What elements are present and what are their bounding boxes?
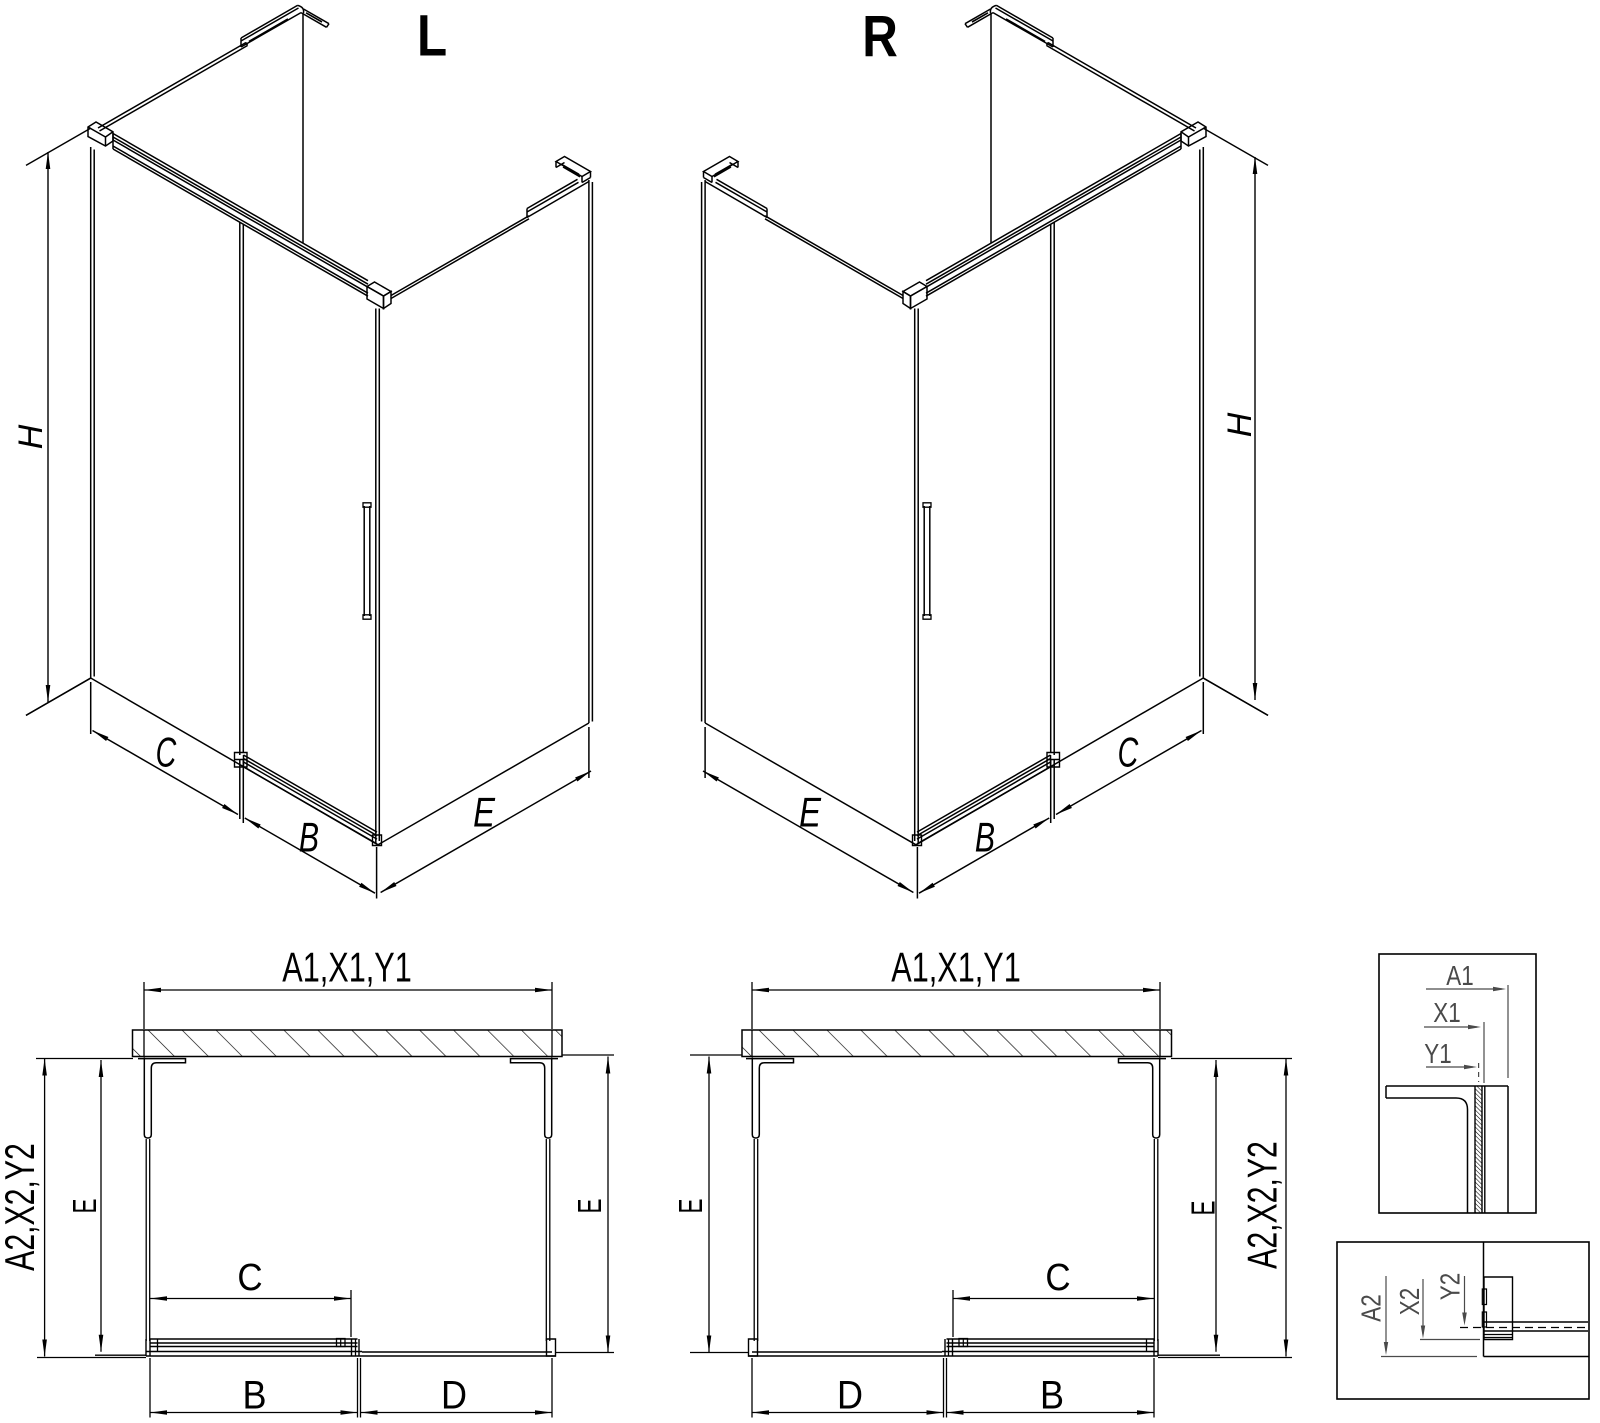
svg-text:C: C <box>237 1256 262 1299</box>
svg-text:A1,X1,Y1: A1,X1,Y1 <box>282 944 411 991</box>
svg-text:Y2: Y2 <box>1435 1273 1466 1300</box>
svg-text:D: D <box>441 1374 467 1418</box>
svg-text:C: C <box>1045 1256 1070 1299</box>
svg-text:B: B <box>299 813 319 860</box>
svg-text:E: E <box>66 1199 103 1214</box>
svg-text:D: D <box>837 1374 863 1418</box>
svg-text:X1: X1 <box>1433 998 1460 1029</box>
svg-text:B: B <box>1040 1374 1064 1418</box>
svg-text:A1,X1,Y1: A1,X1,Y1 <box>891 944 1020 991</box>
svg-text:A2,X2,Y2: A2,X2,Y2 <box>0 1143 43 1271</box>
svg-text:E: E <box>473 789 496 836</box>
svg-text:R: R <box>862 5 898 70</box>
svg-text:H: H <box>1221 412 1259 437</box>
svg-text:B: B <box>242 1374 266 1418</box>
svg-text:C: C <box>1118 728 1139 776</box>
svg-text:H: H <box>12 424 50 449</box>
svg-text:Y1: Y1 <box>1424 1039 1451 1070</box>
svg-text:A1: A1 <box>1446 961 1473 992</box>
svg-text:A2,X2,Y2: A2,X2,Y2 <box>1238 1141 1285 1269</box>
svg-text:E: E <box>799 789 822 836</box>
svg-text:X2: X2 <box>1395 1288 1426 1315</box>
svg-text:C: C <box>156 728 177 776</box>
svg-text:E: E <box>571 1199 608 1214</box>
svg-text:B: B <box>975 813 995 860</box>
svg-text:E: E <box>1184 1201 1221 1216</box>
svg-text:L: L <box>417 4 447 69</box>
svg-text:A2: A2 <box>1356 1294 1387 1321</box>
svg-text:E: E <box>672 1199 709 1214</box>
